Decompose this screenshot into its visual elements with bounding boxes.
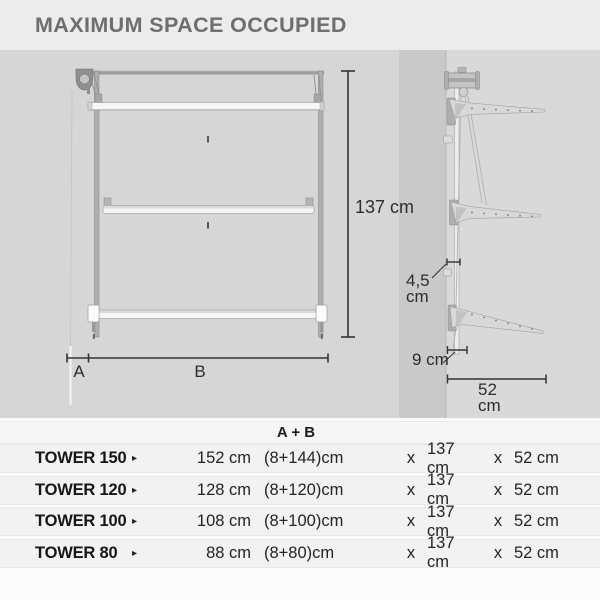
table-row-tower-120: TOWER 120 ▸ 128 cm (8+120)cm x 137 cm x … — [0, 476, 600, 505]
header: MAXIMUM SPACE OCCUPIED — [0, 0, 600, 50]
depth-value: 52 cm — [514, 481, 562, 500]
rail-gap-dimension-label: 4,5 cm — [406, 273, 430, 305]
column-header-ab: A + B — [0, 421, 600, 444]
height-dimension-line — [341, 71, 355, 337]
depth-value: 52 cm — [514, 544, 562, 563]
bullet-arrow-icon: ▸ — [132, 485, 146, 496]
segment-b-label: B — [190, 364, 210, 380]
table-row-tower-150: TOWER 150 ▸ 152 cm (8+144)cm x 137 cm x … — [0, 444, 600, 473]
width-breakdown-value: (8+80)cm — [264, 544, 384, 563]
table-row-tower-100: TOWER 100 ▸ 108 cm (8+100)cm x 137 cm x … — [0, 507, 600, 536]
times-separator: x — [492, 481, 504, 500]
total-width-value: 152 cm — [146, 449, 251, 468]
page-title: MAXIMUM SPACE OCCUPIED — [35, 13, 347, 38]
times-separator: x — [405, 512, 417, 531]
times-separator: x — [405, 481, 417, 500]
model-name: TOWER 80 — [35, 544, 132, 563]
depth-value: 52 cm — [514, 512, 562, 531]
dimension-diagram: 137 cm A B 4,5 cm 9 cm 52 cm — [0, 50, 600, 418]
times-separator: x — [405, 544, 417, 563]
times-separator: x — [492, 544, 504, 563]
width-breakdown-value: (8+120)cm — [264, 481, 384, 500]
times-separator: x — [405, 449, 417, 468]
bullet-arrow-icon: ▸ — [132, 516, 146, 527]
depth-value: 52 cm — [514, 449, 562, 468]
times-separator: x — [492, 449, 504, 468]
bullet-arrow-icon: ▸ — [132, 548, 146, 559]
model-name: TOWER 120 — [35, 481, 132, 500]
model-name: TOWER 150 — [35, 449, 132, 468]
product-dimensions-sheet: MAXIMUM SPACE OCCUPIED — [0, 0, 600, 600]
wall-distance-label: 9 cm — [412, 352, 449, 368]
segment-a-label: A — [69, 364, 89, 380]
front-view-drawing — [71, 69, 328, 405]
width-breakdown-value: (8+144)cm — [264, 449, 384, 468]
width-breakdown-value: (8+100)cm — [264, 512, 384, 531]
times-separator: x — [492, 512, 504, 531]
total-width-value: 88 cm — [146, 544, 251, 563]
rack-technical-drawing — [0, 50, 600, 418]
total-width-value: 128 cm — [146, 481, 251, 500]
height-dimension-label: 137 cm — [355, 199, 414, 215]
depth-dimension-label: 52 cm — [478, 382, 501, 414]
dimensions-table: A + B TOWER 150 ▸ 152 cm (8+144)cm x 137… — [0, 418, 600, 600]
model-name: TOWER 100 — [35, 512, 132, 531]
table-row-tower-80: TOWER 80 ▸ 88 cm (8+80)cm x 137 cm x 52 … — [0, 539, 600, 568]
bullet-arrow-icon: ▸ — [132, 453, 146, 464]
height-value: 137 cm — [427, 534, 477, 572]
total-width-value: 108 cm — [146, 512, 251, 531]
